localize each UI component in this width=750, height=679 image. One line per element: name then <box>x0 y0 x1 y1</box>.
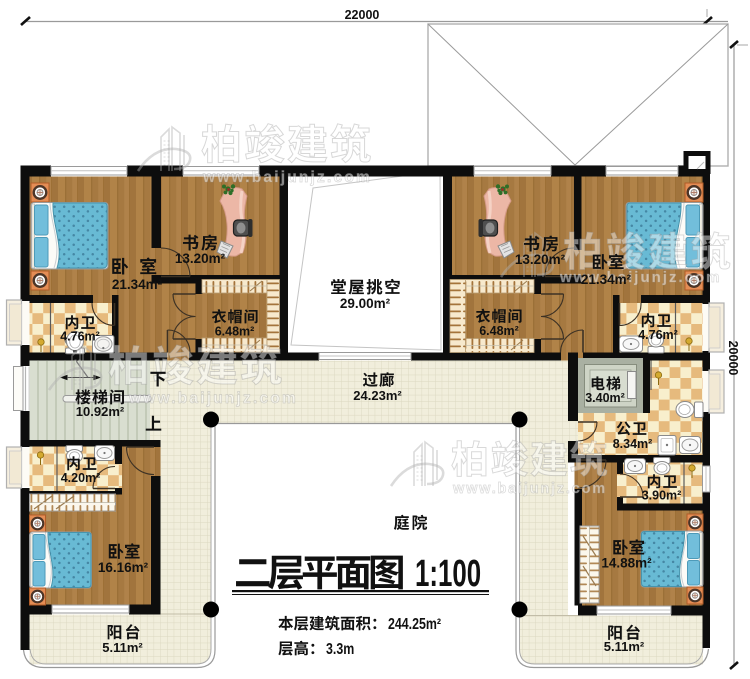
svg-text:6.48m²: 6.48m² <box>479 324 519 338</box>
svg-text:www.baijunjz.com: www.baijunjz.com <box>452 481 607 497</box>
svg-text:www.baijunjz.com: www.baijunjz.com <box>128 390 298 407</box>
svg-text:21.34m²: 21.34m² <box>581 272 632 287</box>
svg-text:4.76m²: 4.76m² <box>60 330 100 344</box>
svg-text:4.20m²: 4.20m² <box>61 471 101 485</box>
svg-text:24.23m²: 24.23m² <box>353 388 402 403</box>
svg-text:244.25m²: 244.25m² <box>388 615 441 633</box>
svg-text:10.92m²: 10.92m² <box>76 404 125 419</box>
svg-text:29.00m²: 29.00m² <box>340 296 391 311</box>
svg-text:8.34m²: 8.34m² <box>613 437 653 451</box>
svg-text:13.20m²: 13.20m² <box>175 251 226 266</box>
svg-text:www.baijunjz.com: www.baijunjz.com <box>202 169 372 186</box>
svg-text:3.90m²: 3.90m² <box>642 489 682 503</box>
svg-text:5.11m²: 5.11m² <box>102 640 143 655</box>
svg-text:4.76m²: 4.76m² <box>638 328 678 342</box>
svg-text:20000: 20000 <box>726 341 740 376</box>
svg-text:21.34m²: 21.34m² <box>112 277 163 292</box>
svg-text:13.20m²: 13.20m² <box>515 252 566 267</box>
svg-text:14.88m²: 14.88m² <box>601 556 652 571</box>
svg-text:5.11m²: 5.11m² <box>604 639 645 654</box>
svg-text:6.48m²: 6.48m² <box>215 325 255 339</box>
svg-text:3.40m²: 3.40m² <box>585 391 625 405</box>
svg-text:22000: 22000 <box>345 8 380 22</box>
svg-text:16.16m²: 16.16m² <box>98 560 149 575</box>
svg-text:3.3m: 3.3m <box>326 640 354 658</box>
svg-text:1:100: 1:100 <box>415 552 481 594</box>
